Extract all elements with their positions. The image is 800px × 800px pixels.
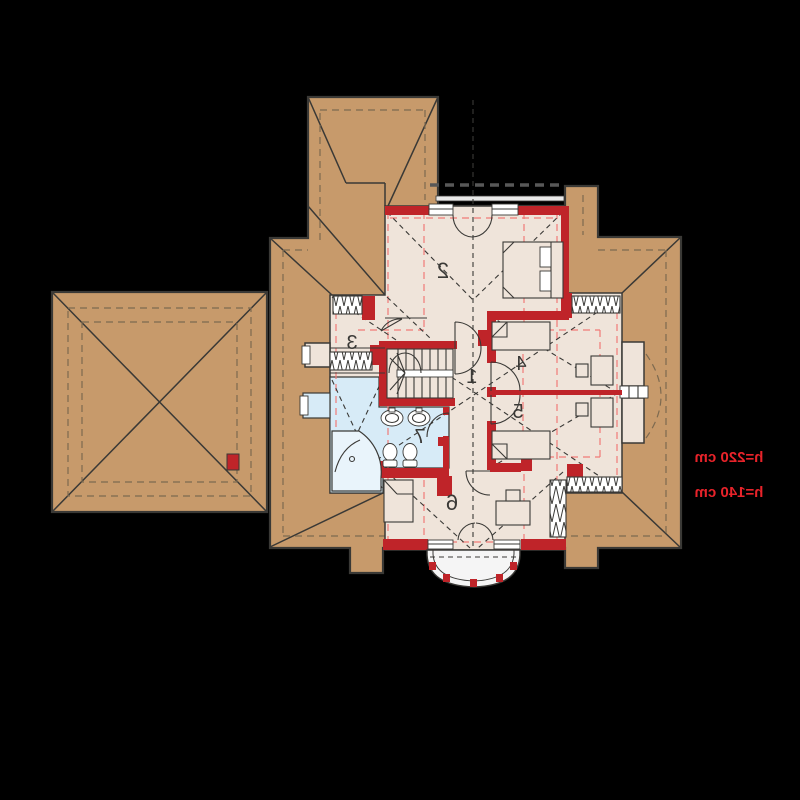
chair-icon <box>576 403 588 416</box>
bed-icon <box>492 431 550 459</box>
floor-plan-drawing: 2 3 1 4 5 6 7 h=220 cm h=140 cm <box>0 0 800 800</box>
balcony-post <box>470 579 477 587</box>
dormer-window <box>620 386 648 398</box>
room-label-5: 5 <box>512 401 523 423</box>
room-label-6: 6 <box>446 490 458 515</box>
annotation-h140: h=140 cm <box>695 484 764 501</box>
balcony-post <box>429 562 436 570</box>
room-label-3: 3 <box>346 332 357 354</box>
annotation-h220: h=220 cm <box>695 449 764 466</box>
wardrobe-icon <box>572 296 620 313</box>
room-label-2: 2 <box>437 258 449 283</box>
chimney-icon <box>227 454 239 470</box>
wardrobe-icon <box>567 477 622 492</box>
toilet-icon <box>383 444 397 468</box>
floor-plan-canvas: 2 3 1 4 5 6 7 h=220 cm h=140 cm <box>0 0 800 800</box>
room-label-7: 7 <box>414 426 425 448</box>
bay-window <box>302 346 310 364</box>
stair-handrail <box>397 370 453 377</box>
terrace-sill <box>436 196 564 201</box>
chair-icon <box>576 364 588 377</box>
room-label-4: 4 <box>515 353 526 375</box>
wardrobe-icon <box>550 480 566 537</box>
bed-icon <box>492 322 550 350</box>
cabinet-icon <box>384 480 413 522</box>
bay-window <box>300 396 308 415</box>
balcony-post <box>443 574 450 582</box>
right-dormer <box>620 342 648 443</box>
balcony-post <box>496 574 503 582</box>
desk-icon <box>591 398 613 427</box>
garage-roof <box>52 292 267 512</box>
stairs <box>387 349 453 398</box>
bed-icon <box>503 242 563 298</box>
balcony-post <box>510 562 517 570</box>
room-label-1: 1 <box>466 366 477 388</box>
wardrobe-icon <box>333 296 362 314</box>
wardrobe-icon <box>330 352 372 370</box>
desk-icon <box>591 356 613 385</box>
